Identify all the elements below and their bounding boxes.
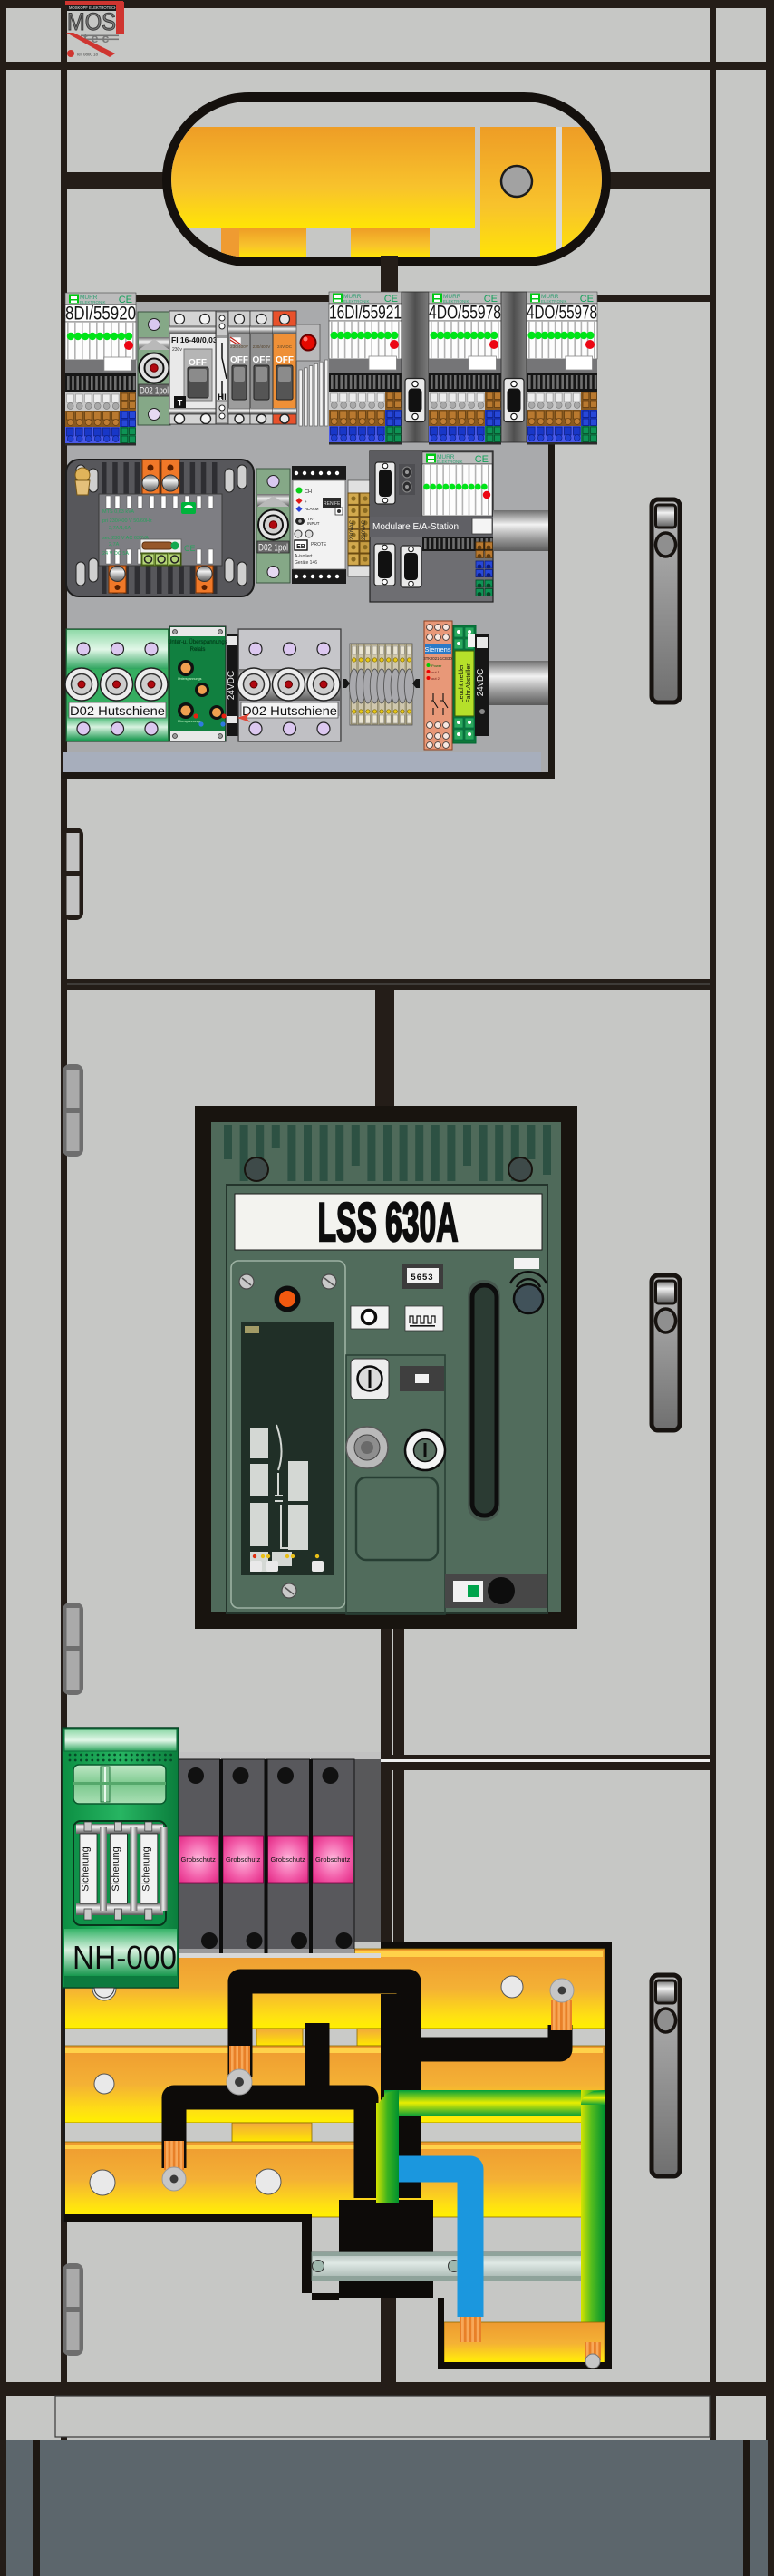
svg-text:CE: CE xyxy=(184,544,196,553)
svg-text:Grobschutz: Grobschutz xyxy=(181,1855,217,1864)
svg-text:MTS 0,63 kVA: MTS 0,63 kVA xyxy=(102,509,134,515)
svg-text:HI: HI xyxy=(218,392,227,402)
svg-text:230VAC: 230VAC xyxy=(362,519,367,540)
svg-text:EB: EB xyxy=(296,544,305,550)
svg-text:Grobschutz: Grobschutz xyxy=(226,1855,261,1864)
svg-text:RENIFE: RENIFE xyxy=(324,501,341,507)
svg-text:Sicherung: Sicherung xyxy=(140,1846,151,1892)
svg-text:230/400V: 230/400V xyxy=(230,344,249,349)
svg-text:Tel. 0800 18: Tel. 0800 18 xyxy=(76,53,98,57)
svg-text:Unterspannungs: Unterspannungs xyxy=(178,677,202,681)
svg-text:Leuchtmelder: Leuchtmelder xyxy=(459,663,465,702)
svg-text:Unter-u. Überspannungs: Unter-u. Überspannungs xyxy=(168,639,227,645)
svg-text:D02 Hutschiene: D02 Hutschiene xyxy=(70,704,165,718)
svg-text:24 V DC 5A: 24 V DC 5A xyxy=(102,551,129,557)
svg-text:A-isoliert: A-isoliert xyxy=(295,554,313,559)
svg-text:2,7A: 2,7A xyxy=(109,542,120,547)
svg-text:16DI/55921: 16DI/55921 xyxy=(329,303,402,324)
svg-text:D02 1pol: D02 1pol xyxy=(258,543,288,554)
svg-text:2,7A/1,6A: 2,7A/1,6A xyxy=(109,526,131,531)
svg-text:Power: Power xyxy=(431,663,442,668)
svg-text:230VAC: 230VAC xyxy=(350,519,355,540)
svg-text:Überspannungs: Überspannungs xyxy=(178,720,201,723)
svg-text:Grobschutz: Grobschutz xyxy=(315,1855,351,1864)
svg-text:230v: 230v xyxy=(172,347,182,353)
svg-text:OFF: OFF xyxy=(276,355,294,365)
svg-text:PROTE: PROTE xyxy=(311,542,327,547)
svg-text:CE: CE xyxy=(475,454,489,465)
svg-text:3TK2021-1CB30: 3TK2021-1CB30 xyxy=(423,656,452,661)
svg-text:8DI/55920: 8DI/55920 xyxy=(65,304,136,324)
svg-text:OFF: OFF xyxy=(253,355,271,365)
svg-text:Relais: Relais xyxy=(190,647,206,653)
svg-text:FI 16-40/0,03: FI 16-40/0,03 xyxy=(171,335,218,344)
svg-text:4DO/55978: 4DO/55978 xyxy=(527,303,597,324)
svg-text:ALARM: ALARM xyxy=(305,507,319,511)
svg-text:out 2: out 2 xyxy=(431,676,440,681)
svg-text:230/400V: 230/400V xyxy=(253,344,272,349)
svg-text:ELEKTRONIK: ELEKTRONIK xyxy=(437,460,463,464)
svg-text:out 1: out 1 xyxy=(431,670,440,674)
svg-text:5653: 5653 xyxy=(411,1273,433,1283)
svg-text:Fahr.Absteller: Fahr.Absteller xyxy=(466,663,472,703)
svg-text:24VDC: 24VDC xyxy=(227,671,237,700)
svg-text:pri 230/400 V 50/60Hz: pri 230/400 V 50/60Hz xyxy=(102,518,152,524)
svg-text:OFF: OFF xyxy=(230,355,248,365)
svg-text:4DO/55978: 4DO/55978 xyxy=(429,303,501,324)
svg-text:+: + xyxy=(305,499,307,504)
svg-text:Modulare E/A-Station: Modulare E/A-Station xyxy=(372,522,459,532)
svg-text:OFF: OFF xyxy=(189,358,207,368)
svg-text:T: T xyxy=(178,399,183,408)
svg-text:Sicherung: Sicherung xyxy=(81,1846,92,1892)
svg-text:Siemens: Siemens xyxy=(424,645,450,654)
svg-text:LSS 630A: LSS 630A xyxy=(318,1193,459,1254)
svg-text:24V DC: 24V DC xyxy=(277,344,293,349)
svg-text:CH: CH xyxy=(305,489,312,495)
svg-text:INPUT: INPUT xyxy=(307,521,320,526)
svg-text:Sicherung: Sicherung xyxy=(111,1846,121,1892)
svg-text:Geräte 146: Geräte 146 xyxy=(295,560,317,566)
svg-text:NH-000: NH-000 xyxy=(73,1939,177,1976)
svg-text:24vDC: 24vDC xyxy=(476,669,486,697)
svg-text:D02 Hutschiene: D02 Hutschiene xyxy=(242,704,337,718)
svg-text:Grobschutz: Grobschutz xyxy=(271,1855,306,1864)
svg-text:D02 1pol: D02 1pol xyxy=(140,386,169,397)
